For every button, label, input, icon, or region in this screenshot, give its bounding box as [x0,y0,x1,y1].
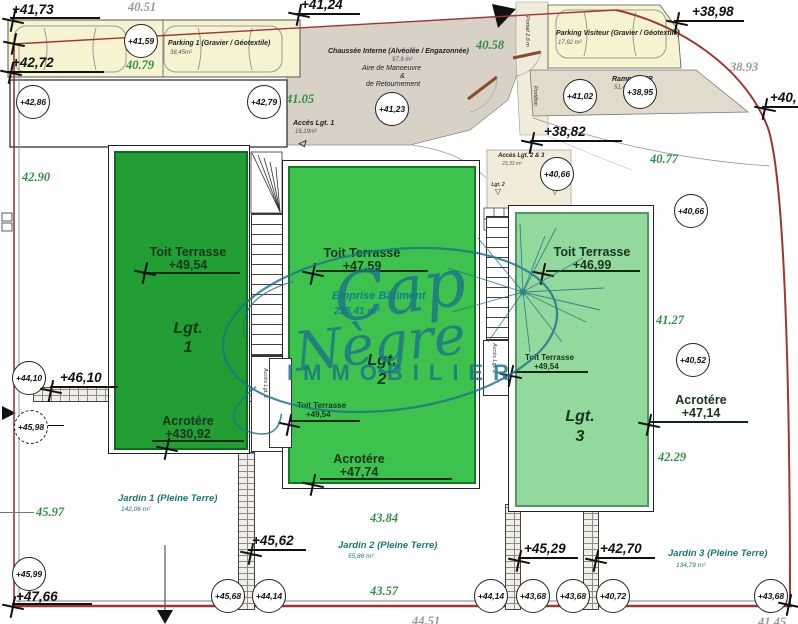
level-4766: +47,66 [16,589,58,604]
chaussee-area: 97,9 m² [392,57,412,63]
level-40-rule [762,106,798,108]
chaussee-sub1: Aire de Manoeuvre [362,65,421,72]
spot-4568: +45,68 [211,579,245,613]
building-lgt2 [288,166,476,484]
spot-4066b: +40,66 [674,194,708,228]
building-lgt1 [114,151,248,450]
level-3882: +38,82 [544,124,586,139]
lgt3-number: 3 [552,428,608,446]
spot-4368c: +43,68 [754,579,788,613]
parking-visiteur-label: Parking Visiteur (Gravier / Géotextile) [556,30,680,37]
parking1-label: Parking 1 (Gravier / Géotextile) [168,40,270,47]
lgt3-roof-rule [546,270,640,272]
dim-4145: 41.45 [758,615,786,624]
boundary-marker-bottom [157,545,173,624]
chaussee-sub2: & [400,73,405,80]
site-plan: Accès Lgt. 1 Accès Lgt. 2 Lgt. 2 ▽ Lgt. … [0,0,798,624]
lgt2-roof-label: Toit Terrasse [317,246,407,260]
lgt2-roof2-label: Toit Terrasse [297,401,346,410]
level-4529: +45,29 [524,541,566,556]
jardin1-label: Jardin 1 (Pleine Terre) [118,493,217,504]
acces-door-icon: ◁ [298,138,305,149]
level-4272-rule [8,71,104,73]
level-40-cut: +40, [770,90,797,105]
lgt2-acro-label: Acrotére [322,452,396,466]
parking1-area: 38,45m² [170,50,192,56]
lgt3-roof-label: Toit Terrasse [545,245,639,259]
lgt2-acro-level: +47,74 [322,465,396,479]
level-4529-rule [518,557,578,559]
portillon-label: Portillon [532,86,538,126]
stair1-treads [251,213,284,356]
spot-4599: +45,99 [12,557,46,591]
level-4610: +46,10 [60,370,102,385]
lgt2-left-notch [269,358,292,448]
spot-4072: +40,72 [596,579,630,613]
lgt3-roof2-rule [514,371,588,373]
lgt1-roof-level: +49,54 [138,258,238,272]
dim-4451: 44.51 [412,614,440,624]
lgt1-acro-label: Acrotére [148,414,228,428]
acces-lgt1-landing-label: Accès Lgt. 1 [262,368,268,440]
spot-4279: +42,79 [247,85,281,119]
spot-4123: +41,23 [375,92,409,126]
spot-4368a: +43,68 [516,579,550,613]
level-3898: +38,98 [692,4,734,19]
terrain-4105: 41.05 [286,92,314,107]
terrain-4127: 41.27 [656,313,684,328]
garage-roof [10,80,287,147]
acces-lgt2-landing [483,340,511,396]
spot-4598: +45,98 [14,410,48,444]
terrain-4290: 42.90 [22,170,50,185]
spot-4102: +41,02 [563,79,597,113]
acces-lgt23-label: Accès Lgt. 2 & 3 [498,153,544,159]
acces-lgt2-landing-label: Accès Lgt. 2 [491,343,497,393]
lgt1-roof-rule [142,272,240,274]
emprise-label: Emprise Bâtiment [332,290,426,302]
jardin2-label: Jardin 2 (Pleine Terre) [338,540,437,551]
lgt3-roof2-level: +49,54 [534,362,559,371]
level-4173: +41,73 [12,2,54,17]
jardin3-area: 134,79 m² [676,562,705,569]
portail-label: Portail 2,8 m [524,16,530,86]
lgt1-name: Lgt. [158,320,218,338]
lgt1-acro-level: +430,92 [148,427,228,441]
left-edge-steps [2,213,12,231]
level-4562: +45,62 [252,533,294,548]
terrain-4384: 43.84 [370,511,398,526]
lgt2-roof2-level: +49,54 [306,410,331,419]
lgt1-number: 1 [158,339,218,357]
terrain-4597: 45.97 [36,505,64,520]
terrain-4058: 40.58 [476,38,504,53]
level-4124-rule [296,13,360,15]
lgt3-acro-level: +47,14 [656,406,746,420]
emprise-area: 235,41 m² [334,306,380,317]
spot-4066a: +40,66 [540,157,574,191]
spot-4052: +40,52 [676,343,710,377]
level-4124: +41,24 [301,0,343,12]
spot-4410: +44,10 [12,361,46,395]
jardin1-area: 142,06 m² [121,506,150,513]
door-symbol-lgt2: Lgt. 2 ▽ [485,182,511,195]
lgt2-number: 2 [352,371,412,389]
level-4562-rule [248,549,306,551]
lgt3-roof2-label: Toit Terrasse [525,353,574,362]
lgt3-name: Lgt. [552,408,608,426]
lgt2-roof-rule [316,270,428,272]
spot-4286: +42,86 [16,85,50,119]
jardin3-label: Jardin 3 (Pleine Terre) [668,548,767,559]
lgt2-acro-rule [320,478,452,480]
level-4610-rule [50,386,118,388]
spot-4159: +41,59 [124,24,158,58]
terrain-4077: 40.77 [650,152,678,167]
lgt3-acro-rule [650,421,748,423]
stair1-fan [251,152,282,213]
chaussee-sub3: de Retournement [366,81,420,88]
acces-lgt1-area: 16,19m² [295,129,317,135]
spot-4414a: +44,14 [252,579,286,613]
acces-lgt1-label: Accès Lgt. 1 [293,120,334,127]
lgt1-acro-rule [152,440,244,442]
level-4270-rule [595,557,655,559]
terrain-4597-leader [0,512,34,513]
door-arrow-icon: ▽ [485,188,511,195]
level-4173-rule [10,17,100,19]
terrain-4229: 42.29 [658,450,686,465]
lgt3-acro-label: Acrotére [656,393,746,407]
level-3898-rule [674,20,744,22]
jardin2-area: 55,86 m² [348,553,374,560]
spot-4414b: +44,14 [474,579,508,613]
terrain-4357: 43.57 [370,584,398,599]
spot-3895: +38,95 [623,75,657,109]
lgt1-roof-label: Toit Terrasse [138,245,238,259]
lgt2-roof2-rule [290,420,360,422]
level-3882-rule [530,140,622,142]
parking-visiteur-area: 17,62 m² [558,40,582,46]
level-4270: +42,70 [600,541,642,556]
terrain-4079: 40.79 [126,58,154,73]
dim-4051: 40.51 [128,0,156,15]
spot-4368b: +43,68 [556,579,590,613]
spot-4598-leader [46,425,64,426]
level-4272: +42,72 [12,55,54,70]
dim-3893: 38.93 [730,60,758,75]
lgt2-name: Lgt. [352,352,412,370]
acces-lgt23-area: 23,33 m² [502,161,522,167]
chaussee-label: Chaussée Interne (Alvéolée / Engazonnée) [328,48,469,55]
